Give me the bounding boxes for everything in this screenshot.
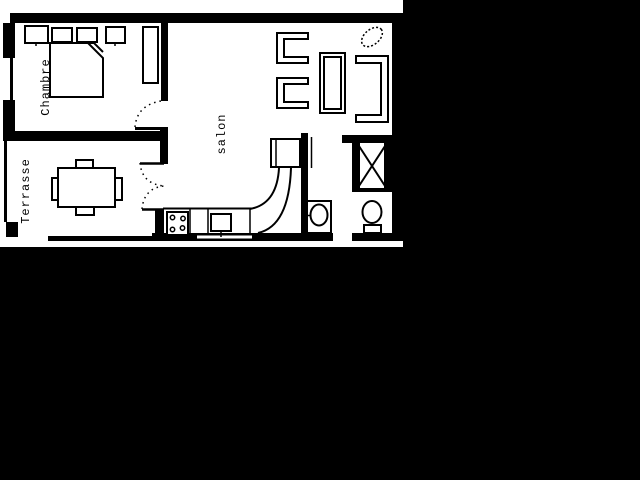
wall-column-upper (160, 127, 168, 164)
dining-chair-icon (76, 207, 94, 215)
dining-chair-icon (52, 178, 58, 200)
left-wall-mid (3, 100, 15, 133)
terrace-label: Terrasse (19, 158, 33, 224)
living-room-label: salon (215, 113, 229, 154)
bedroom-terrace-wall (3, 131, 160, 141)
terrace-corner-post (6, 222, 18, 237)
dining-chair-icon (115, 178, 122, 200)
pillow-icon (77, 28, 97, 42)
kitchen-sink-icon (211, 214, 231, 231)
nightstand-icon (106, 27, 125, 43)
terrace-railing-bottom (48, 236, 152, 241)
top-wall (10, 13, 403, 23)
bottom-wall-right (352, 233, 392, 241)
kitchen-window-inner (197, 239, 252, 242)
bottom-wall-mid (252, 233, 333, 241)
bathroom-top-wall (342, 135, 403, 143)
bed-icon (50, 43, 103, 97)
terrace-furniture (52, 160, 122, 215)
nightstand-icon (25, 26, 48, 43)
left-wall-upper (3, 23, 15, 58)
wardrobe-icon (143, 27, 158, 83)
bedroom-window (10, 58, 13, 100)
floor-plan: Chambre Terrasse salon (0, 0, 403, 252)
pillow-icon (52, 28, 72, 42)
bedroom-label: Chambre (39, 58, 53, 115)
right-wall (392, 13, 403, 241)
toilet-bowl-icon (363, 201, 382, 223)
kitchen-window-outer (197, 233, 252, 236)
stove-icon (167, 212, 188, 235)
dining-chair-icon (76, 160, 93, 168)
bedroom-right-wall (161, 23, 168, 101)
dining-table-icon (58, 168, 115, 207)
toilet-tank (364, 225, 381, 233)
terrace-railing-left (4, 141, 7, 222)
